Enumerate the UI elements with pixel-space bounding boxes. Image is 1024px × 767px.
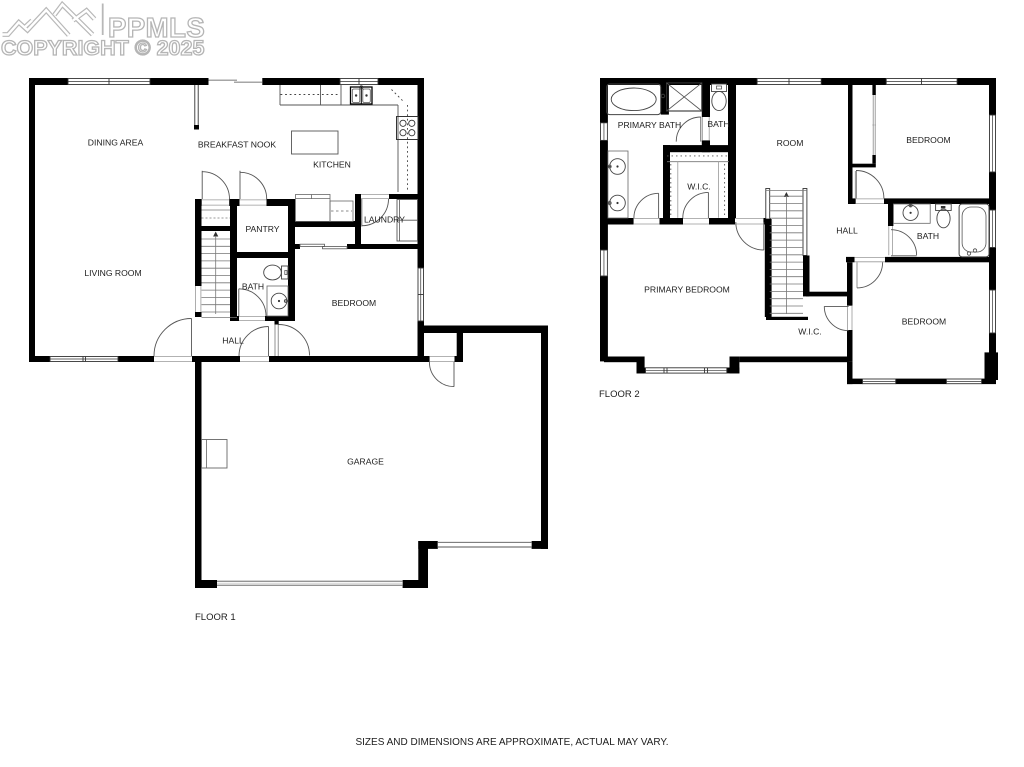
svg-text:W.I.C.: W.I.C. bbox=[687, 182, 710, 192]
svg-text:SIZES AND DIMENSIONS ARE APPRO: SIZES AND DIMENSIONS ARE APPROXIMATE, AC… bbox=[355, 737, 668, 748]
svg-text:BREAKFAST NOOK: BREAKFAST NOOK bbox=[198, 140, 276, 150]
svg-text:DINING AREA: DINING AREA bbox=[88, 138, 144, 148]
svg-text:BEDROOM: BEDROOM bbox=[332, 298, 376, 308]
svg-text:LIVING ROOM: LIVING ROOM bbox=[84, 268, 141, 278]
svg-text:HALL: HALL bbox=[222, 336, 244, 346]
svg-text:BEDROOM: BEDROOM bbox=[906, 135, 950, 145]
svg-text:BATH: BATH bbox=[707, 119, 729, 129]
svg-text:LAUNDRY: LAUNDRY bbox=[364, 215, 405, 225]
svg-text:PRIMARY BATH: PRIMARY BATH bbox=[618, 120, 682, 130]
svg-text:PANTRY: PANTRY bbox=[245, 224, 279, 234]
svg-text:BATH: BATH bbox=[242, 282, 264, 292]
svg-text:COPYRIGHT © 2025: COPYRIGHT © 2025 bbox=[1, 36, 204, 60]
svg-text:PRIMARY BEDROOM: PRIMARY BEDROOM bbox=[644, 285, 730, 295]
svg-text:FLOOR 2: FLOOR 2 bbox=[599, 389, 640, 400]
svg-text:BEDROOM: BEDROOM bbox=[902, 317, 946, 327]
svg-text:FLOOR 1: FLOOR 1 bbox=[195, 612, 236, 623]
svg-text:GARAGE: GARAGE bbox=[347, 457, 384, 467]
svg-text:ROOM: ROOM bbox=[777, 138, 804, 148]
svg-text:HALL: HALL bbox=[836, 226, 858, 236]
svg-text:KITCHEN: KITCHEN bbox=[313, 160, 351, 170]
svg-text:BATH: BATH bbox=[917, 231, 939, 241]
svg-text:W.I.C.: W.I.C. bbox=[798, 327, 821, 337]
